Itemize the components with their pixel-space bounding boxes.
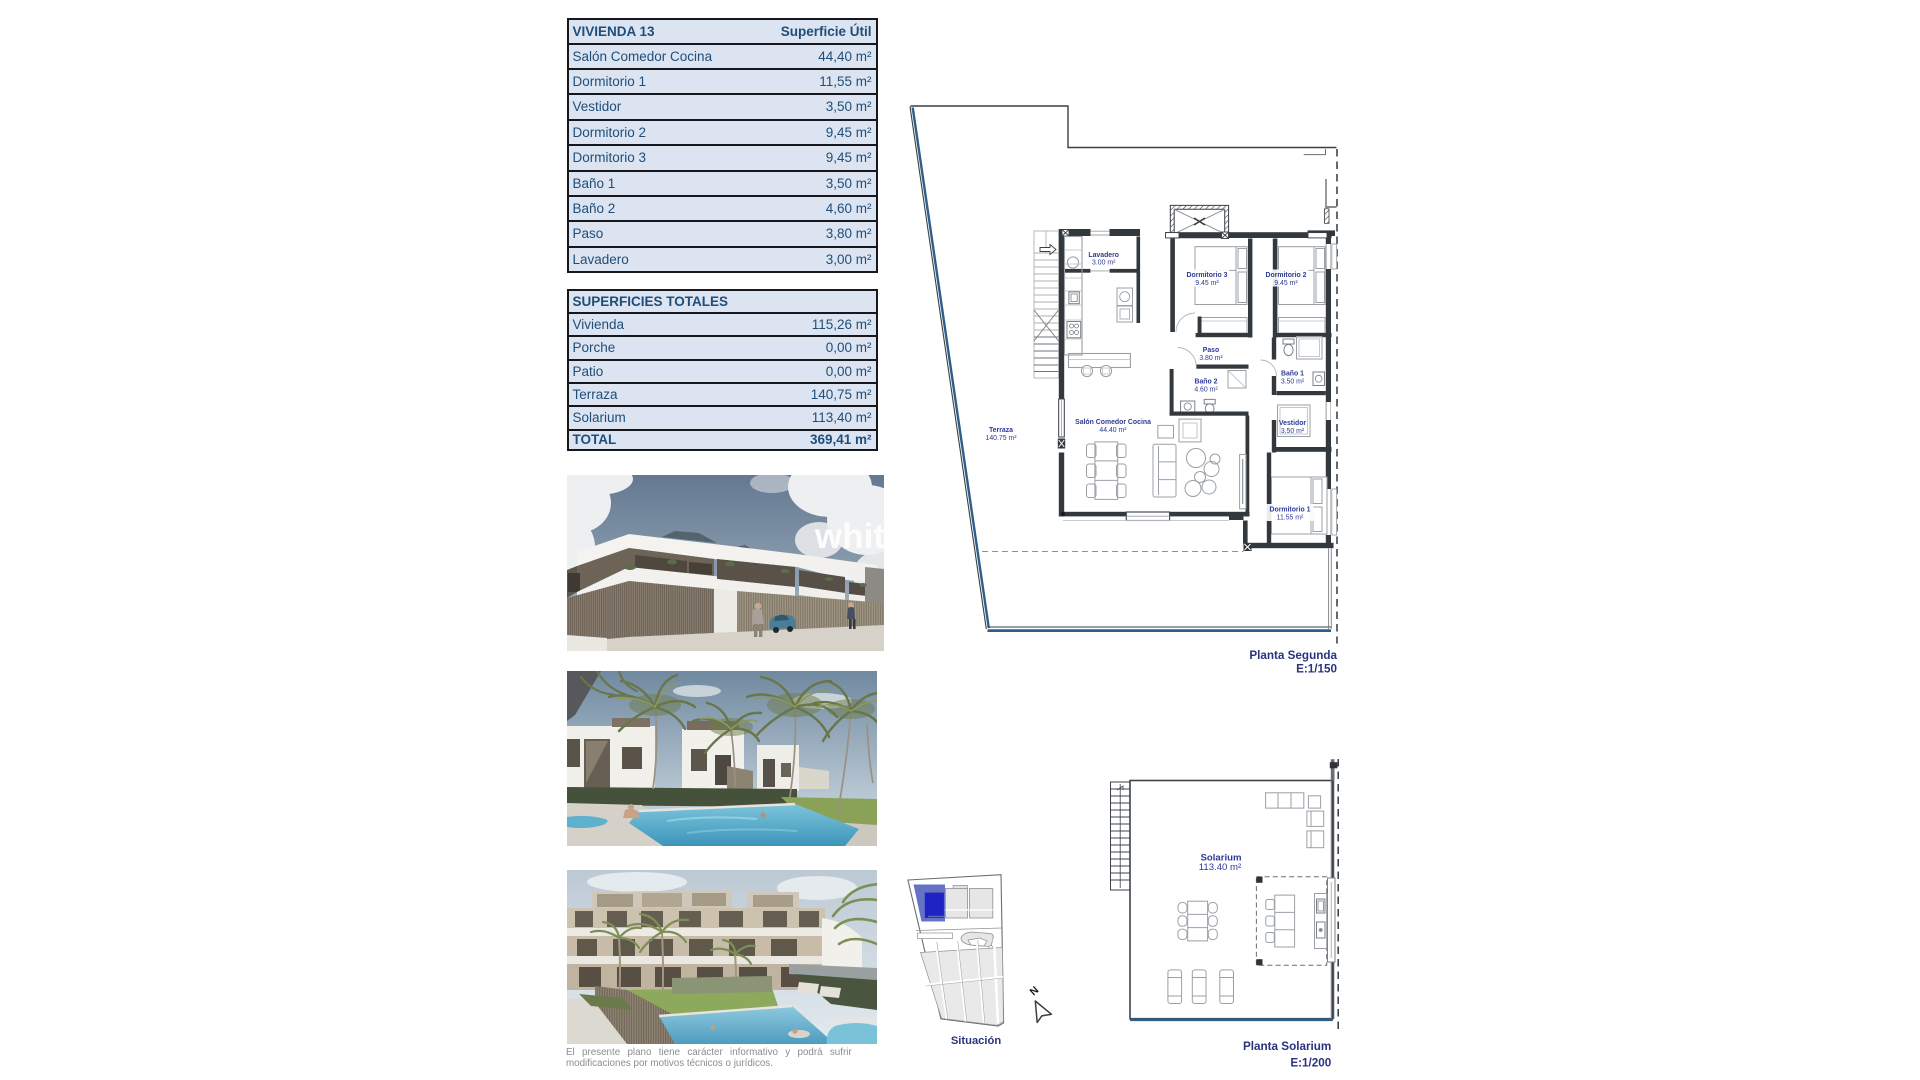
svg-text:3.50 m²: 3.50 m² xyxy=(1281,428,1305,435)
svg-text:E:1/150: E:1/150 xyxy=(1296,662,1337,675)
svg-text:E:1/200: E:1/200 xyxy=(1290,1057,1331,1070)
svg-text:3.00 m²: 3.00 m² xyxy=(1092,260,1116,267)
svg-text:Situación: Situación xyxy=(951,1035,1002,1047)
svg-text:Dormitorio 3: Dormitorio 3 xyxy=(1187,272,1228,279)
svg-text:Vestidor: Vestidor xyxy=(1279,420,1307,427)
svg-text:N: N xyxy=(1028,984,1042,998)
svg-text:3.50 m²: 3.50 m² xyxy=(1281,378,1305,385)
svg-text:Planta Solarium: Planta Solarium xyxy=(1243,1040,1331,1053)
svg-text:Terraza: Terraza xyxy=(989,427,1013,434)
svg-text:Paso: Paso xyxy=(1203,347,1219,354)
svg-text:Dormitorio 1: Dormitorio 1 xyxy=(1270,507,1311,514)
svg-text:Baño 2: Baño 2 xyxy=(1195,379,1218,386)
svg-text:Dormitorio 2: Dormitorio 2 xyxy=(1266,272,1307,279)
svg-text:white: white xyxy=(814,517,884,556)
svg-text:140.75 m²: 140.75 m² xyxy=(985,435,1017,442)
svg-text:11.55 m²: 11.55 m² xyxy=(1277,514,1304,521)
svg-text:9.45 m²: 9.45 m² xyxy=(1274,280,1298,287)
svg-text:Salón Comedor Cocina: Salón Comedor Cocina xyxy=(1075,419,1151,426)
svg-text:3.80 m²: 3.80 m² xyxy=(1199,355,1223,362)
svg-text:Baño 1: Baño 1 xyxy=(1281,371,1304,378)
svg-text:9.45 m²: 9.45 m² xyxy=(1195,280,1219,287)
svg-text:44.40 m²: 44.40 m² xyxy=(1099,427,1127,434)
svg-text:Planta Segunda: Planta Segunda xyxy=(1249,649,1337,662)
svg-text:4.60 m²: 4.60 m² xyxy=(1194,386,1218,393)
svg-text:Lavadero: Lavadero xyxy=(1088,252,1119,259)
svg-text:113.40 m²: 113.40 m² xyxy=(1199,862,1242,873)
